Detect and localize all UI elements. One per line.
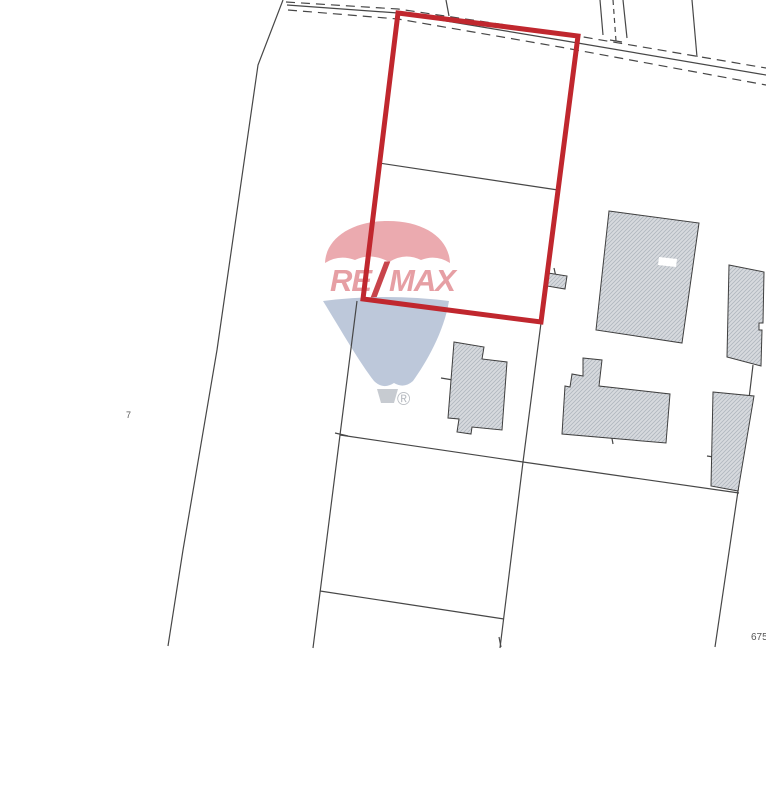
building-small-annex (547, 273, 567, 289)
building-stepped-center (562, 358, 670, 443)
left-boundary-line (168, 0, 283, 646)
building-east-lower (711, 392, 754, 491)
parcel-divider-line (379, 163, 558, 190)
boundary-stub-3 (623, 0, 627, 38)
parcel-number-label: 675 (751, 632, 766, 643)
boundary-stub-dashed (613, 0, 616, 41)
building-large-north (596, 211, 699, 343)
cadastral-map: RE / MAX ® (0, 0, 766, 787)
building-east-upper (727, 265, 764, 366)
building-stepped-west (448, 342, 507, 434)
boundary-stub-4 (692, 0, 697, 57)
road-centerline (287, 5, 766, 75)
road-dashed-upper (286, 2, 766, 68)
cross-boundary-line (340, 435, 739, 493)
boundary-stub-2 (600, 0, 603, 35)
remax-max-text: MAX (389, 263, 458, 298)
registered-icon: ® (397, 389, 410, 409)
buildings-layer (448, 211, 764, 491)
lower-divider-line (320, 591, 504, 619)
parcel-number-label: 7 (126, 410, 131, 420)
balloon-top-icon (325, 221, 450, 263)
remax-watermark: RE / MAX ® (323, 221, 458, 409)
balloon-basket-icon (377, 389, 398, 403)
map-svg: RE / MAX ® (0, 0, 766, 787)
boundary-stub-1 (446, 0, 449, 16)
balloon-bottom-icon (323, 297, 449, 386)
